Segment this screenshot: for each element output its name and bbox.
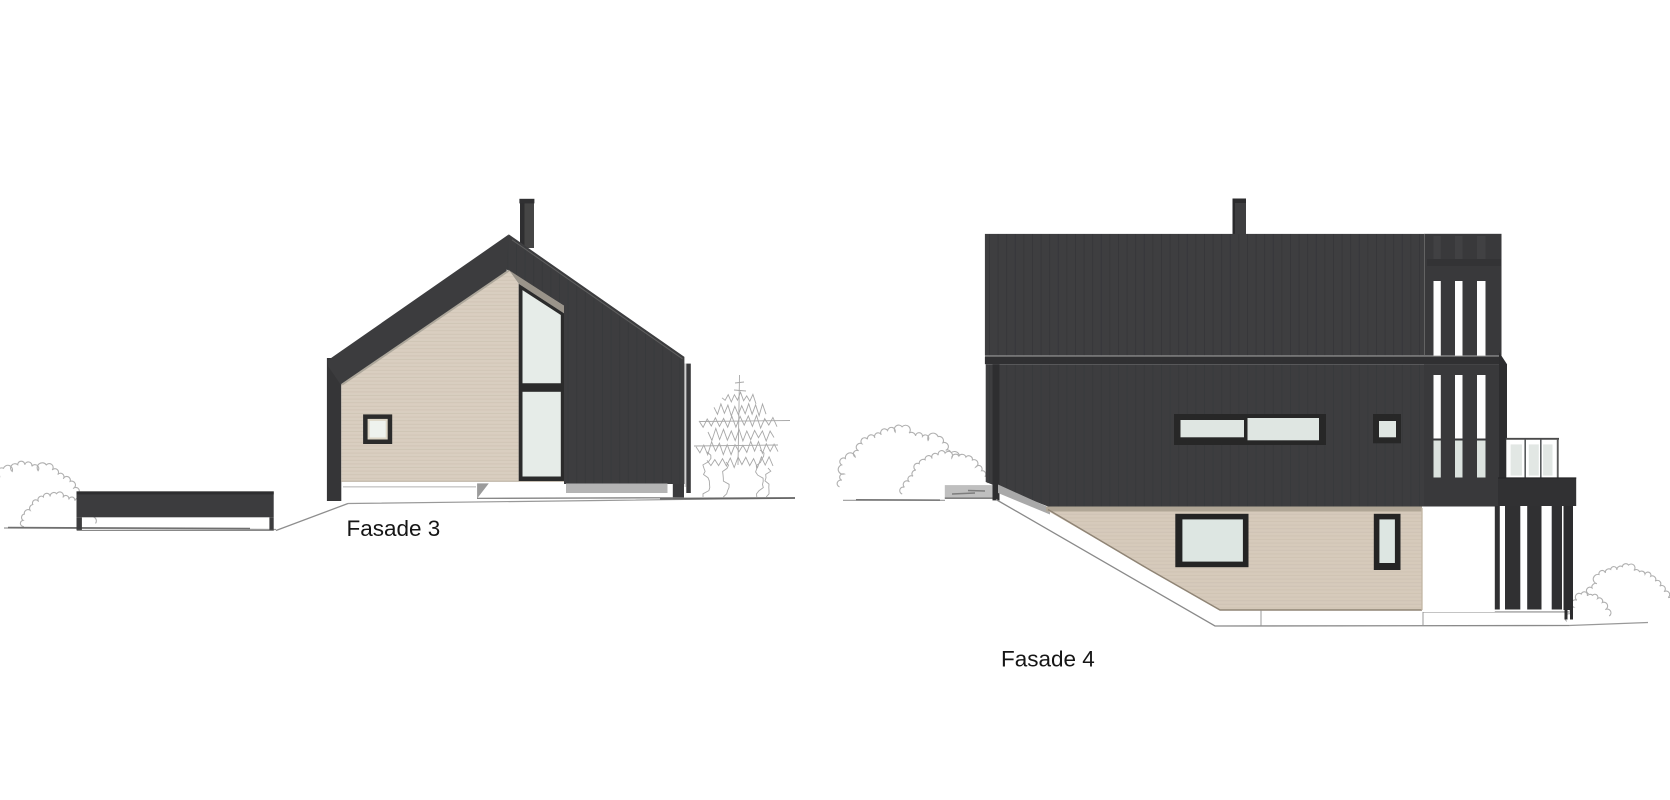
svg-text:Fasade 4: Fasade 4 [1001, 646, 1095, 671]
svg-text:Fasade 3: Fasade 3 [347, 516, 441, 541]
